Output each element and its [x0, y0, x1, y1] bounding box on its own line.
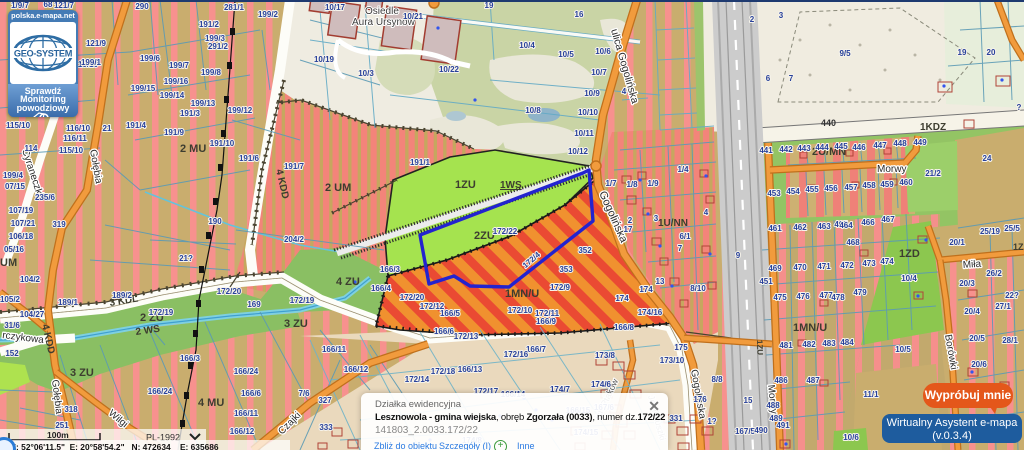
svg-text:333: 333	[319, 423, 333, 432]
svg-text:20/6: 20/6	[971, 360, 987, 369]
svg-text:199/1: 199/1	[81, 58, 102, 67]
svg-text:448: 448	[893, 139, 907, 148]
svg-text:166/4: 166/4	[371, 284, 392, 293]
svg-text:15: 15	[744, 396, 753, 405]
svg-text:443: 443	[797, 144, 811, 153]
svg-text:116/10: 116/10	[66, 124, 91, 133]
svg-text:487: 487	[806, 376, 820, 385]
svg-text:204/2: 204/2	[284, 235, 305, 244]
svg-text:1/4: 1/4	[677, 165, 689, 174]
svg-text:352: 352	[578, 246, 592, 255]
svg-text:174: 174	[615, 294, 629, 303]
svg-text:476: 476	[796, 292, 810, 301]
svg-text:UM: UM	[0, 257, 17, 269]
svg-text:166/11: 166/11	[322, 345, 347, 354]
svg-text:10/22: 10/22	[439, 65, 460, 74]
svg-text:166/6: 166/6	[241, 389, 262, 398]
svg-text:189/1: 189/1	[58, 298, 79, 307]
svg-text:191/9: 191/9	[164, 128, 185, 137]
svg-text:22?: 22?	[1005, 291, 1019, 300]
svg-text:20: 20	[987, 48, 996, 57]
svg-text:199/8: 199/8	[201, 68, 222, 77]
svg-text:483: 483	[822, 339, 836, 348]
svg-text:10/9: 10/9	[584, 89, 600, 98]
svg-text:189/2: 189/2	[112, 291, 133, 300]
svg-text:470: 470	[793, 263, 807, 272]
svg-text:199/7: 199/7	[169, 61, 190, 70]
svg-text:19: 19	[958, 48, 967, 57]
svg-text:1ZD: 1ZD	[899, 248, 920, 260]
svg-text:166/7: 166/7	[526, 345, 547, 354]
svg-text:?: ?	[1017, 103, 1022, 112]
svg-text:8/10: 8/10	[690, 284, 706, 293]
svg-text:461: 461	[768, 224, 782, 233]
svg-text:191/4: 191/4	[126, 121, 147, 130]
svg-text:478: 478	[831, 293, 845, 302]
svg-text:20/4: 20/4	[964, 307, 980, 316]
svg-text:191/10: 191/10	[210, 139, 235, 148]
svg-text:449: 449	[913, 138, 927, 147]
svg-text:166/13: 166/13	[458, 365, 483, 374]
svg-text:235/6: 235/6	[35, 193, 56, 202]
svg-text:166/6: 166/6	[434, 327, 455, 336]
svg-text:464: 464	[839, 221, 853, 230]
svg-text:441: 441	[759, 146, 773, 155]
svg-text:166/24: 166/24	[148, 387, 173, 396]
svg-text:353: 353	[559, 265, 573, 274]
svg-text:458: 458	[862, 181, 876, 190]
svg-text:7/6: 7/6	[298, 389, 310, 398]
svg-text:172/16: 172/16	[504, 350, 529, 359]
svg-text:2: 2	[750, 15, 755, 24]
svg-text:290: 290	[135, 2, 149, 11]
svg-text:121/7: 121/7	[54, 1, 75, 10]
svg-text:176: 176	[693, 395, 707, 404]
svg-text:445: 445	[834, 142, 848, 151]
svg-text:9: 9	[736, 251, 741, 260]
svg-text:166/8: 166/8	[614, 323, 635, 332]
svg-text:190: 190	[208, 217, 222, 226]
svg-text:1WS: 1WS	[500, 180, 522, 191]
svg-text:172/20: 172/20	[400, 293, 425, 302]
svg-text:191/7: 191/7	[284, 162, 305, 171]
svg-text:172/18: 172/18	[431, 367, 456, 376]
svg-text:24: 24	[983, 154, 992, 163]
svg-text:1KDZ: 1KDZ	[920, 122, 946, 133]
svg-text:21: 21	[103, 124, 112, 133]
svg-text:486: 486	[774, 376, 788, 385]
svg-text:1ZU: 1ZU	[755, 340, 765, 356]
svg-text:21?: 21?	[179, 254, 193, 263]
svg-text:Osiedle: Osiedle	[365, 6, 399, 17]
svg-text:172/19: 172/19	[149, 308, 174, 317]
svg-text:447: 447	[873, 141, 887, 150]
svg-text:191/3: 191/3	[180, 109, 201, 118]
svg-text:1U/NN: 1U/NN	[658, 218, 688, 229]
svg-text:173/10: 173/10	[660, 356, 685, 365]
svg-text:3 ZU: 3 ZU	[70, 367, 94, 379]
svg-text:121/9: 121/9	[86, 39, 107, 48]
svg-text:26/2: 26/2	[986, 269, 1002, 278]
svg-text:166/12: 166/12	[230, 427, 255, 436]
svg-text:27/1: 27/1	[995, 302, 1011, 311]
svg-text:114: 114	[25, 144, 38, 153]
svg-text:1/9/7: 1/9/7	[11, 1, 29, 10]
svg-text:10/6: 10/6	[595, 47, 611, 56]
svg-text:2ZU: 2ZU	[474, 230, 495, 242]
svg-text:3 ZU: 3 ZU	[284, 318, 308, 330]
svg-text:169: 169	[247, 300, 261, 309]
svg-text:457: 457	[844, 183, 858, 192]
svg-text:444: 444	[815, 143, 829, 152]
svg-text:115/10: 115/10	[6, 121, 31, 130]
svg-text:453: 453	[767, 189, 781, 198]
svg-text:199/6: 199/6	[140, 54, 161, 63]
svg-text:11/1: 11/1	[863, 390, 879, 399]
svg-text:1/9: 1/9	[647, 179, 659, 188]
svg-text:166/12: 166/12	[344, 365, 369, 374]
svg-text:10/3: 10/3	[358, 69, 374, 78]
svg-text:3: 3	[779, 11, 784, 20]
svg-text:1MN/U: 1MN/U	[505, 288, 539, 300]
svg-text:10/6: 10/6	[843, 433, 859, 442]
svg-text:175: 175	[674, 343, 688, 352]
svg-text:460: 460	[899, 178, 913, 187]
svg-text:172/13: 172/13	[454, 332, 479, 341]
svg-text:10/11: 10/11	[574, 129, 594, 138]
svg-text:2: 2	[628, 216, 633, 225]
svg-text:468: 468	[846, 238, 860, 247]
svg-text:166/5: 166/5	[440, 309, 461, 318]
svg-text:3: 3	[654, 214, 659, 223]
svg-text:479: 479	[853, 288, 867, 297]
svg-text:172/14: 172/14	[405, 375, 430, 384]
svg-text:25/19: 25/19	[980, 227, 1001, 236]
svg-text:459: 459	[880, 180, 894, 189]
svg-text:7: 7	[678, 244, 683, 253]
svg-text:6: 6	[766, 74, 771, 83]
svg-text:281/1: 281/1	[224, 3, 245, 12]
svg-text:166/3: 166/3	[180, 354, 201, 363]
svg-text:107/21: 107/21	[11, 219, 36, 228]
svg-text:199/3: 199/3	[205, 34, 226, 43]
svg-text:491: 491	[776, 421, 790, 430]
svg-text:10/17: 10/17	[325, 3, 346, 12]
svg-text:199/16: 199/16	[164, 77, 189, 86]
svg-text:2 MU: 2 MU	[180, 143, 206, 155]
svg-text:440: 440	[821, 118, 836, 128]
svg-text:20/5: 20/5	[969, 334, 985, 343]
svg-text:07/15: 07/15	[5, 182, 26, 191]
svg-text:115/10: 115/10	[59, 146, 84, 155]
svg-text:105/2: 105/2	[0, 295, 21, 304]
svg-text:466: 466	[861, 218, 875, 227]
svg-text:1?: 1?	[707, 417, 716, 426]
svg-text:446: 446	[852, 143, 866, 152]
svg-text:473: 473	[862, 259, 876, 268]
svg-text:10/21: 10/21	[403, 12, 424, 21]
svg-text:17: 17	[624, 225, 633, 234]
svg-text:462: 462	[793, 223, 807, 232]
svg-text:6/1: 6/1	[679, 232, 691, 241]
svg-text:1MN/U: 1MN/U	[793, 322, 827, 334]
svg-text:199/15: 199/15	[131, 84, 156, 93]
svg-text:191/2: 191/2	[199, 20, 220, 29]
svg-text:10/5: 10/5	[558, 50, 574, 59]
svg-text:454: 454	[786, 187, 800, 196]
svg-text:31/6: 31/6	[4, 321, 20, 330]
svg-text:463: 463	[817, 222, 831, 231]
svg-text:9/5: 9/5	[839, 49, 851, 58]
svg-text:19: 19	[485, 1, 494, 10]
svg-text:4: 4	[622, 87, 627, 96]
svg-text:GEO-SYSTEM: GEO-SYSTEM	[14, 49, 73, 59]
svg-text:107/19: 107/19	[9, 206, 34, 215]
svg-text:451: 451	[759, 277, 773, 286]
svg-text:104/2: 104/2	[20, 275, 41, 284]
svg-text:331: 331	[669, 414, 683, 423]
svg-text:25/5: 25/5	[1004, 224, 1020, 233]
svg-text:166/11: 166/11	[234, 409, 259, 418]
svg-text:174/6: 174/6	[591, 380, 612, 389]
svg-text:2 UM: 2 UM	[325, 182, 351, 194]
svg-text:199/14: 199/14	[160, 91, 185, 100]
svg-text:166/9: 166/9	[536, 317, 557, 326]
svg-text:469: 469	[768, 264, 782, 273]
svg-text:456: 456	[824, 184, 838, 193]
svg-text:318: 318	[64, 405, 78, 414]
svg-text:482: 482	[802, 340, 816, 349]
svg-text:10/4: 10/4	[901, 274, 917, 283]
svg-text:10/5: 10/5	[895, 345, 911, 354]
svg-text:8/8: 8/8	[711, 375, 723, 384]
svg-text:490: 490	[754, 426, 768, 435]
svg-text:199/2: 199/2	[258, 10, 279, 19]
svg-text:28/1: 28/1	[1002, 336, 1018, 345]
svg-text:100m: 100m	[47, 430, 69, 440]
svg-text:166/3: 166/3	[380, 265, 401, 274]
svg-text:Miła: Miła	[962, 259, 981, 271]
svg-text:455: 455	[805, 185, 819, 194]
svg-text:471: 471	[817, 262, 831, 271]
svg-text:319: 319	[52, 220, 66, 229]
svg-text:4: 4	[704, 208, 709, 217]
svg-text:472: 472	[840, 261, 854, 270]
svg-text:05/16: 05/16	[4, 245, 25, 254]
svg-text:20/3: 20/3	[959, 279, 975, 288]
svg-text:1/7: 1/7	[605, 179, 617, 188]
svg-text:4 MU: 4 MU	[198, 397, 224, 409]
svg-text:13: 13	[656, 277, 665, 286]
svg-text:199/13: 199/13	[191, 99, 216, 108]
svg-text:106/18: 106/18	[9, 232, 34, 241]
svg-text:475: 475	[773, 293, 787, 302]
svg-text:152: 152	[5, 349, 19, 358]
svg-text:172/19: 172/19	[290, 296, 315, 305]
svg-text:10/7: 10/7	[591, 68, 607, 77]
svg-text:191/6: 191/6	[239, 154, 260, 163]
svg-text:7: 7	[789, 74, 794, 83]
svg-text:16: 16	[575, 10, 584, 19]
svg-text:1/8: 1/8	[626, 180, 638, 189]
svg-text:167/5: 167/5	[735, 427, 756, 436]
svg-text:174: 174	[639, 285, 653, 294]
svg-text:21/2: 21/2	[925, 169, 941, 178]
svg-text:199/4: 199/4	[3, 171, 24, 180]
svg-text:1ZU: 1ZU	[455, 179, 476, 191]
svg-text:174/16: 174/16	[638, 308, 663, 317]
svg-text:116/11: 116/11	[63, 134, 87, 143]
svg-text:20/1: 20/1	[949, 238, 965, 247]
svg-text:Morwy: Morwy	[877, 164, 906, 175]
svg-text:10/12: 10/12	[568, 147, 589, 156]
svg-text:327: 327	[318, 396, 332, 405]
svg-text:172/10: 172/10	[508, 306, 533, 315]
svg-text:442: 442	[779, 145, 793, 154]
svg-text:199/12: 199/12	[228, 106, 253, 115]
svg-text:467: 467	[881, 215, 895, 224]
svg-text:291/2: 291/2	[208, 42, 229, 51]
svg-text:484: 484	[840, 338, 854, 347]
svg-text:172/22: 172/22	[493, 227, 518, 236]
svg-text:474: 474	[880, 257, 894, 266]
svg-text:488: 488	[766, 401, 780, 410]
svg-text:10/19: 10/19	[314, 55, 335, 64]
svg-text:10/10: 10/10	[578, 108, 599, 117]
svg-text:481: 481	[779, 341, 793, 350]
svg-text:166/24: 166/24	[234, 367, 259, 376]
svg-text:173/8: 173/8	[595, 351, 616, 360]
svg-text:191/1: 191/1	[410, 158, 431, 167]
svg-text:10/4: 10/4	[519, 41, 535, 50]
svg-text:1ZD: 1ZD	[1013, 242, 1024, 252]
svg-text:172/9: 172/9	[550, 283, 571, 292]
svg-text:10/8: 10/8	[525, 106, 541, 115]
svg-text:104/27: 104/27	[20, 310, 45, 319]
svg-text:172/20: 172/20	[217, 287, 242, 296]
svg-text:4 ZU: 4 ZU	[336, 276, 360, 288]
